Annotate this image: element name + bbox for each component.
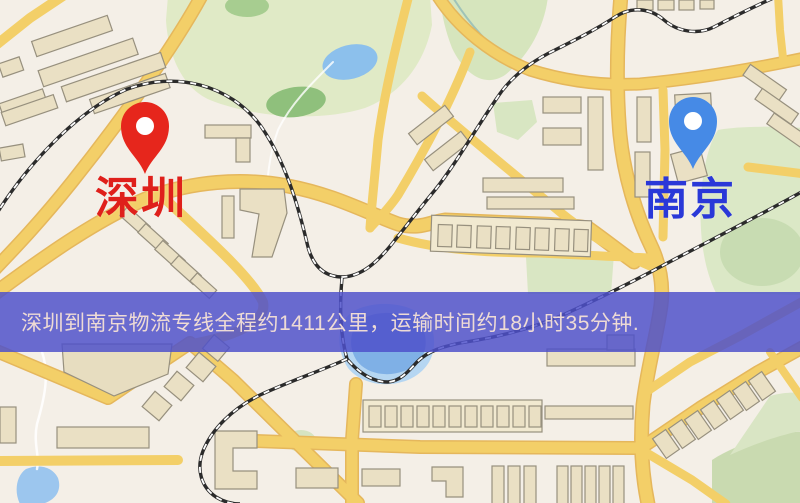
nanjing-map-pin-icon[interactable]: [667, 95, 719, 171]
shenzhen-city-label: 深圳: [95, 177, 187, 221]
map-canvas[interactable]: [0, 0, 800, 503]
shenzhen-map-pin-icon[interactable]: [119, 100, 171, 176]
nanjing-city-label: 南京: [644, 178, 736, 222]
map-screenshot: 深圳到南京物流专线全程约1411公里，运输时间约18小时35分钟. 深圳 南京: [0, 0, 800, 503]
route-info-text: 深圳到南京物流专线全程约1411公里，运输时间约18小时35分钟.: [0, 307, 639, 337]
route-info-banner: 深圳到南京物流专线全程约1411公里，运输时间约18小时35分钟.: [0, 292, 800, 352]
